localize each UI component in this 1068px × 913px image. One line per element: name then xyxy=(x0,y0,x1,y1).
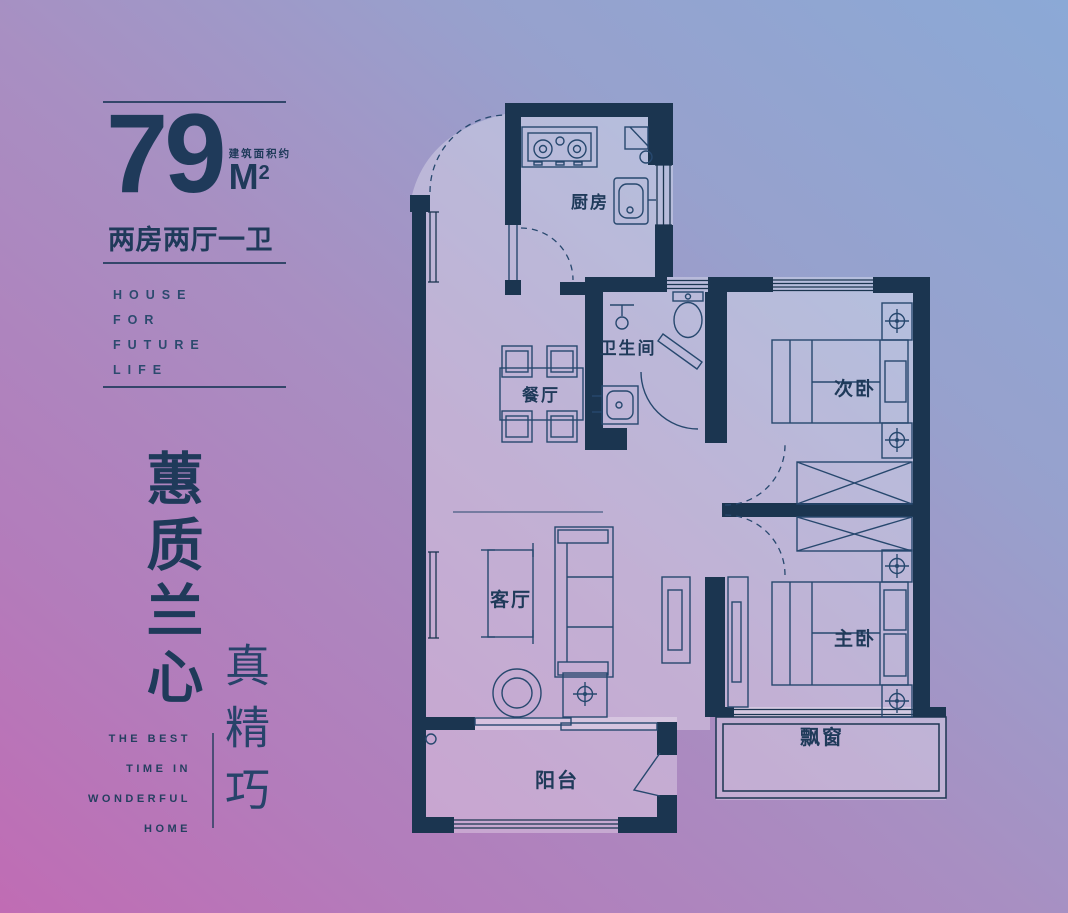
wall xyxy=(710,707,734,717)
room-label-living-room: 客厅 xyxy=(490,588,532,611)
room-label-balcony: 阳台 xyxy=(535,768,579,792)
room-label-second-bedroom: 次卧 xyxy=(834,377,876,400)
wall xyxy=(708,277,773,292)
wall xyxy=(425,717,475,730)
kitchen-window xyxy=(655,165,672,225)
wall xyxy=(585,288,603,450)
wall xyxy=(505,280,521,295)
wall xyxy=(657,795,677,833)
baywindow-floor xyxy=(716,707,946,800)
floor-plan: 厨房 餐厅 卫生间 次卧 客厅 主卧 飘窗 阳台 xyxy=(0,0,1068,913)
wall xyxy=(705,292,727,443)
wall xyxy=(585,428,627,450)
wall xyxy=(412,817,454,833)
poster: 79 建筑面积约 M2 两房两厅一卫 HOUSE FOR FUTURE LIFE… xyxy=(0,0,1068,913)
wall xyxy=(657,722,677,755)
wall xyxy=(505,103,673,117)
wall xyxy=(916,707,946,717)
wall xyxy=(655,225,673,277)
wall xyxy=(913,277,930,717)
wall xyxy=(410,195,430,212)
wall xyxy=(722,503,920,517)
wall xyxy=(412,210,426,833)
wall xyxy=(505,110,521,225)
room-label-kitchen: 厨房 xyxy=(571,192,609,212)
room-label-bathroom: 卫生间 xyxy=(600,338,657,358)
room-label-dining: 餐厅 xyxy=(522,385,560,405)
room-label-bay-window: 飘窗 xyxy=(800,725,844,749)
wall xyxy=(705,577,725,717)
room-label-master-bedroom: 主卧 xyxy=(834,628,876,650)
